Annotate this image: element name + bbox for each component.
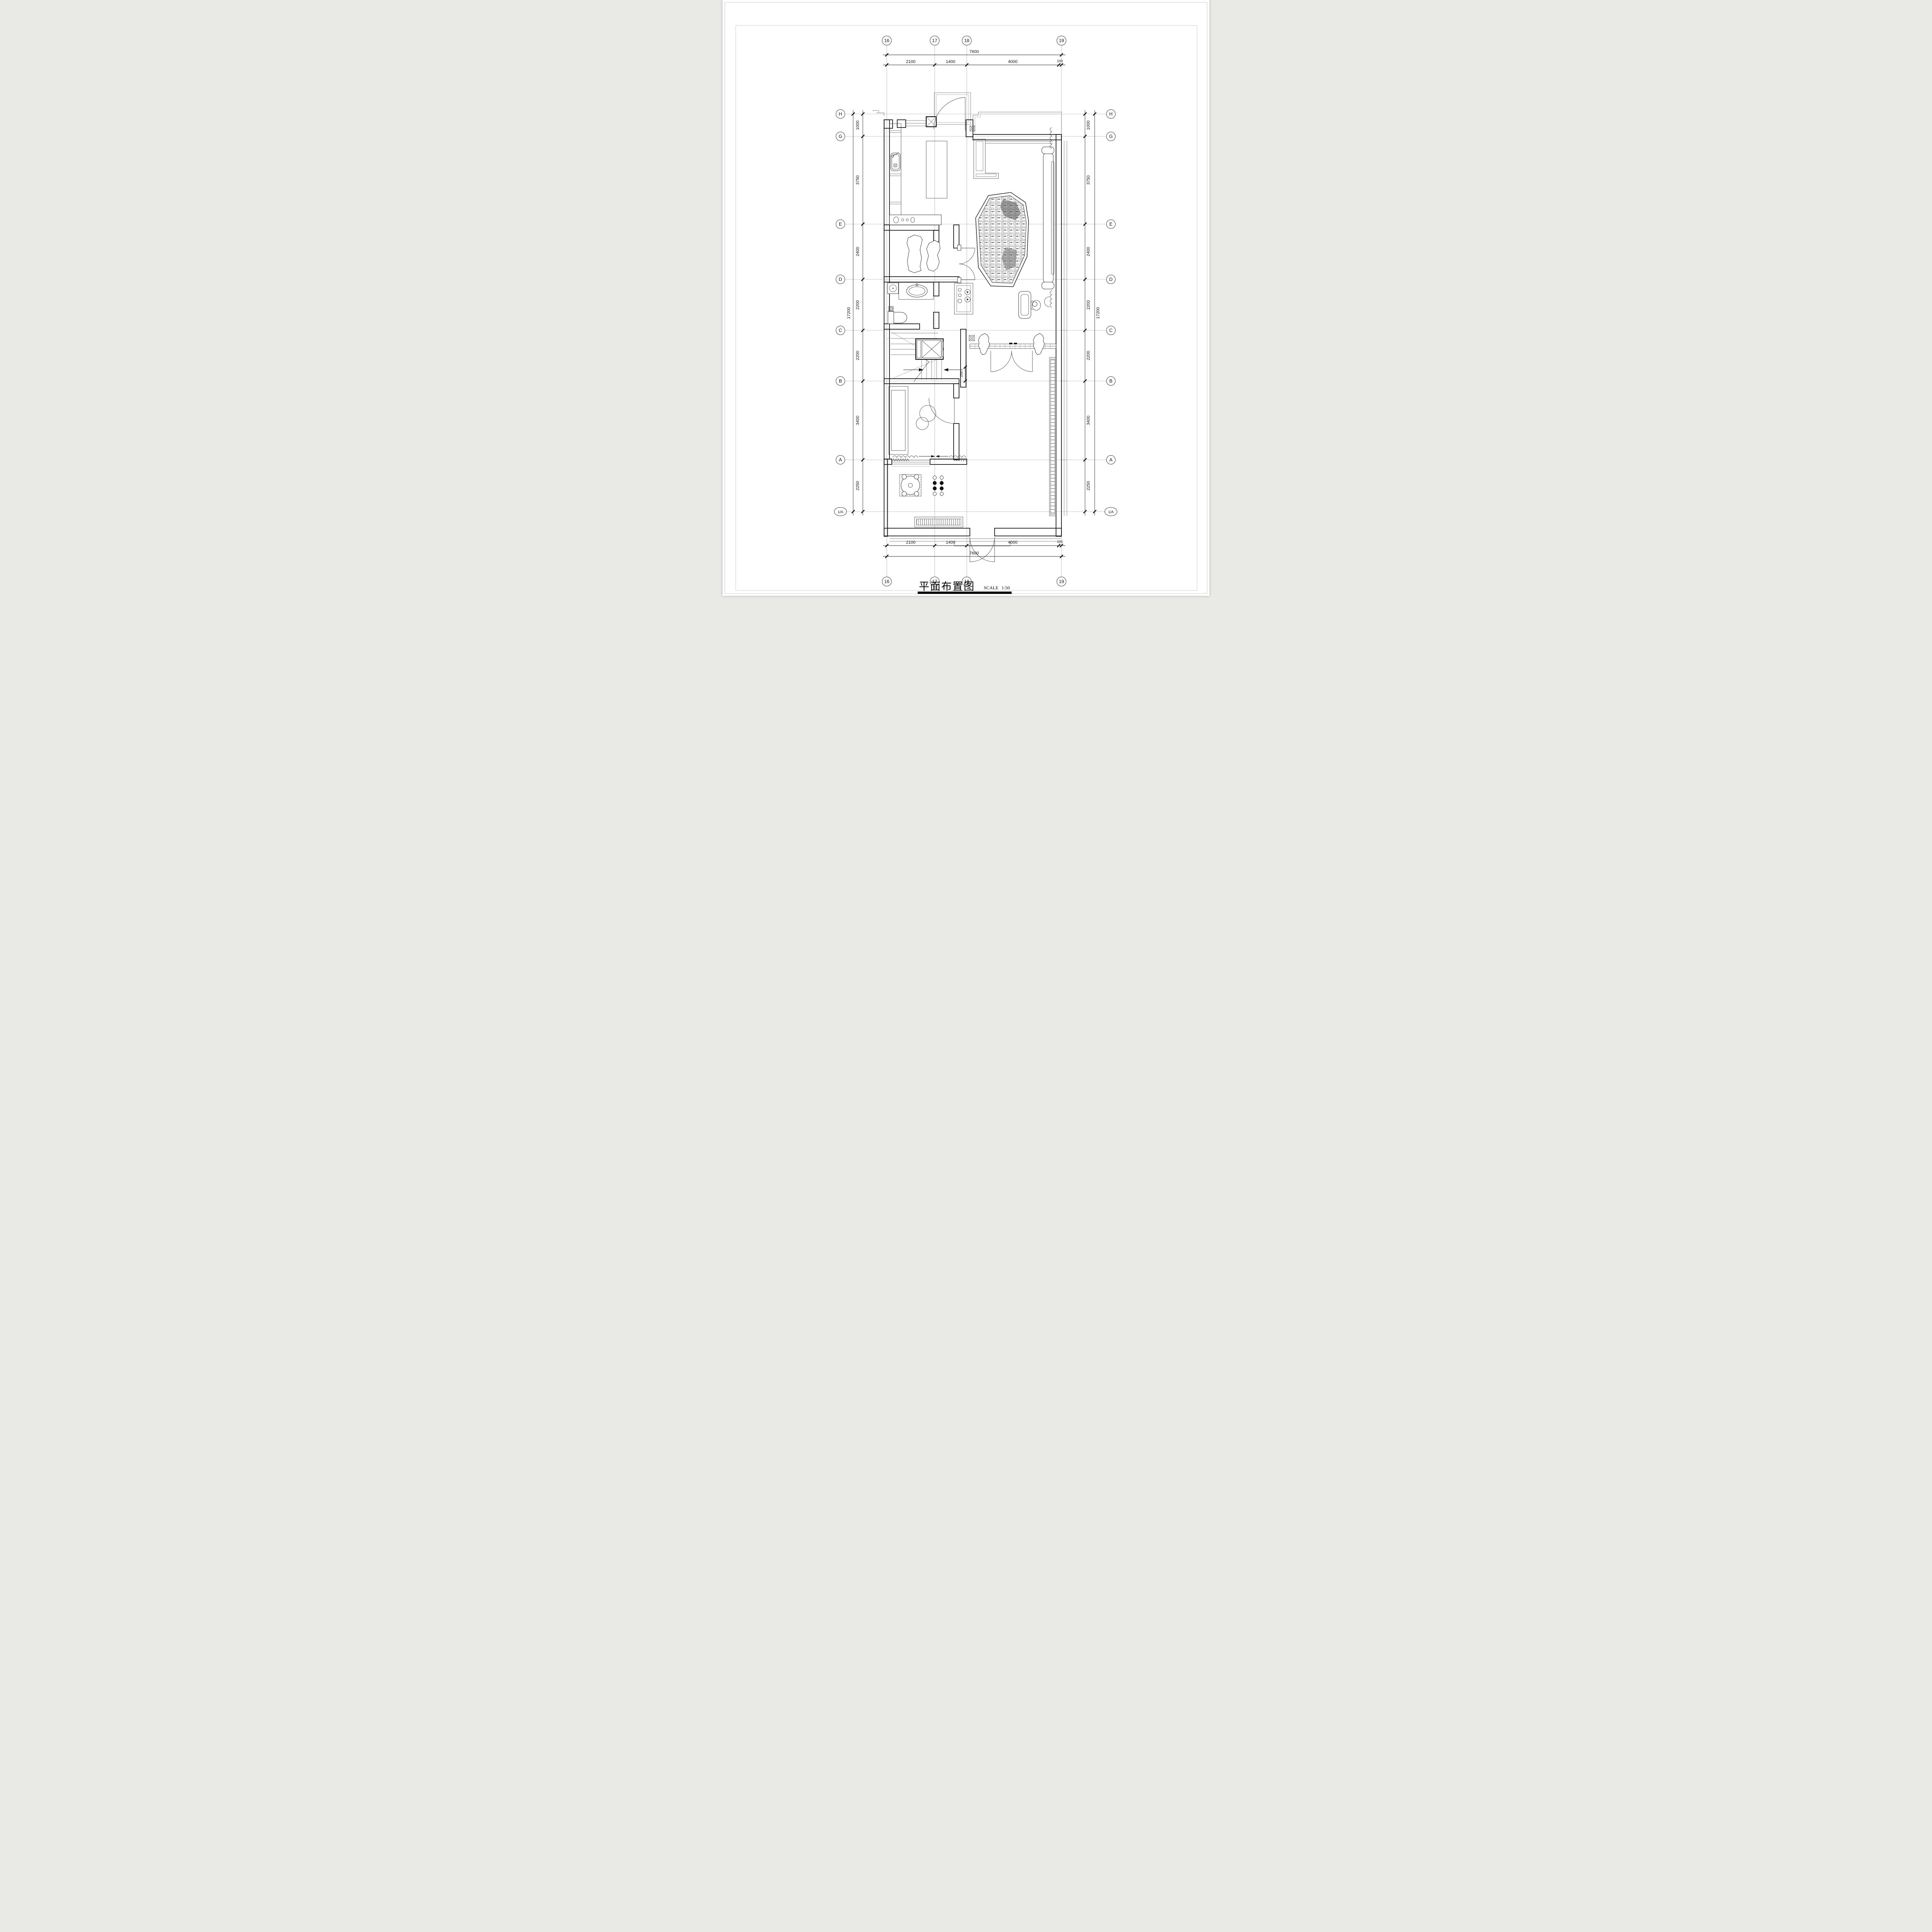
- grid-label: H: [1109, 111, 1113, 117]
- floor-drain-icon: [969, 335, 975, 341]
- bench-slats-symbol: [915, 517, 963, 527]
- sheet-frame: [725, 2, 1207, 594]
- grid-label: E: [1109, 221, 1112, 227]
- drawing-title: 平面布置图: [919, 581, 975, 593]
- grid-bubbles-right: H G E D C B A 1/A: [1105, 110, 1117, 516]
- grid-label: 19: [1059, 579, 1064, 584]
- dim-text: 2400: [855, 247, 860, 256]
- title-block: 平面布置图 SCALE 1:50: [918, 581, 1012, 596]
- dim-text: 100: [1057, 59, 1063, 63]
- wall-pier: [934, 230, 939, 242]
- wall-bottom-right: [995, 528, 1061, 536]
- wall-study-right-lower: [954, 423, 959, 460]
- wall-left-courtyard: [884, 459, 888, 536]
- map-table-symbol: [976, 192, 1029, 287]
- entry-closet: [974, 139, 998, 179]
- wall-kitchen-bedroom: [884, 225, 939, 230]
- grid-label: G: [838, 134, 842, 139]
- mat-symbol: [927, 240, 940, 271]
- dim-text: 200: [959, 371, 963, 377]
- dim-text: 2200: [855, 300, 860, 310]
- grid-label: D: [1109, 277, 1113, 282]
- wall-top-right: [973, 134, 1061, 140]
- dim-text: 3400: [1086, 416, 1091, 425]
- dim-text: 17200: [1096, 307, 1100, 319]
- shower-panel-symbol: [954, 283, 973, 314]
- grid-label: A: [1109, 457, 1112, 463]
- grid-label: 1/A: [838, 510, 844, 514]
- dim-text: 1400: [946, 60, 955, 64]
- dim-text: 100: [1057, 540, 1063, 544]
- stair-arrow: [919, 368, 923, 371]
- grid-label: 19: [1059, 38, 1064, 43]
- wall-study-right-upper: [954, 384, 959, 398]
- grid-label: 16: [884, 38, 889, 43]
- desk-symbol: [1019, 291, 1031, 318]
- grid-label: 1/A: [1108, 510, 1114, 514]
- doors: [929, 97, 1032, 562]
- grid-label: H: [839, 111, 842, 117]
- stair-arrow: [944, 368, 948, 371]
- toilet-symbol: [888, 311, 907, 324]
- title-underline-bar: [918, 592, 1012, 594]
- mat-symbol: [907, 235, 922, 273]
- table-symbol: [920, 405, 936, 422]
- dim-text: 17200: [847, 307, 851, 319]
- grid-label: C: [1109, 328, 1113, 333]
- dim-text: 3750: [1086, 175, 1091, 185]
- wall-niche: [1044, 297, 1049, 307]
- drawing-sheet: 16 17 18 19 16 17 18 19 H G E: [723, 0, 1209, 596]
- patio-table-symbol: [900, 474, 921, 496]
- window-top: [906, 121, 926, 126]
- grid-label: 17: [932, 38, 937, 43]
- vanity-sink-symbol: [899, 282, 934, 299]
- wall-entry-jamb: [966, 120, 973, 137]
- grid-bubbles-top: 16 17 18 19: [882, 36, 1066, 45]
- grid-label: 18: [964, 38, 969, 43]
- dim-text: 2400: [1086, 247, 1091, 256]
- chair-symbol: [933, 475, 937, 496]
- grid-system: 16 17 18 19 16 17 18 19 H G E: [834, 36, 1117, 586]
- grid-label: B: [839, 378, 842, 384]
- dim-text: 2100: [906, 60, 915, 64]
- wall-bath-bottom: [884, 324, 920, 329]
- person-at-desk-symbol: [1031, 300, 1041, 310]
- grid-label: E: [839, 221, 842, 227]
- walls: [884, 117, 1061, 536]
- bathroom: [888, 282, 973, 324]
- chair-symbol: [916, 417, 929, 430]
- dim-text: 2250: [855, 481, 860, 490]
- dim-right: 1000 3750 2400 2200 2200 3400 2250 17200: [1083, 110, 1100, 515]
- kitchen-sink-symbol: [891, 153, 900, 171]
- desk-cabinet: [889, 386, 908, 454]
- wall-bedroom-right-upper: [954, 225, 959, 248]
- radiator-grate-symbol: [1049, 357, 1056, 516]
- dim-text: 1000: [1086, 121, 1091, 130]
- dim-text: 2250: [1086, 481, 1091, 490]
- scale-value: 1:50: [1002, 585, 1010, 590]
- dim-text: 4000: [1008, 540, 1017, 545]
- dim-text: 2200: [855, 351, 860, 360]
- dim-text: 3400: [855, 416, 860, 425]
- dim-text: 2200: [1086, 351, 1091, 360]
- grid-label: B: [1109, 378, 1112, 384]
- dim-text: 1400: [946, 540, 955, 545]
- dim-text: 7600: [969, 49, 979, 54]
- chair-symbol: [940, 475, 944, 496]
- scale-label: SCALE: [984, 585, 998, 590]
- washing-machine-symbol: [888, 283, 898, 294]
- wall-bottom-left: [884, 528, 970, 536]
- plant-symbol: [978, 333, 990, 355]
- floor-plan-svg: 16 17 18 19 16 17 18 19 H G E: [723, 0, 1209, 596]
- wall-a-right: [930, 459, 967, 464]
- bedroom: [907, 235, 940, 273]
- kitchen-island: [926, 141, 947, 198]
- dim-left: 1000 3750 2400 2200 2200 3400 2250 17200: [847, 110, 864, 515]
- grid-bubbles-left: H G E D C B A 1/A: [834, 110, 847, 516]
- glass-partition: [970, 333, 1056, 355]
- wall-a-left: [884, 459, 892, 464]
- dim-top: 7600 2100 1400 4000 100: [883, 49, 1065, 66]
- cooktop-symbol: [889, 215, 941, 225]
- dim-text: 2100: [906, 540, 915, 545]
- grid-label: 16: [884, 579, 889, 584]
- dim-bottom: 2100 1400 4000 100 7600: [883, 540, 1065, 558]
- elevator-shaft-symbol: [916, 339, 943, 359]
- wall-bath-right-upper: [934, 282, 939, 296]
- dim-text: 3750: [855, 175, 860, 185]
- bedroom-double-door: [957, 245, 975, 283]
- desk-cabinet-inner: [891, 390, 905, 451]
- grid-label: C: [839, 328, 842, 333]
- living-area: [976, 128, 1054, 318]
- sofa-symbol: [1042, 147, 1054, 289]
- dim-text: 2200: [1086, 300, 1091, 310]
- dim-text: 4000: [1008, 60, 1017, 64]
- wall-bath-right-lower: [934, 312, 939, 328]
- terrace-french-doors: [970, 537, 995, 562]
- wall-corner-block: [884, 120, 893, 128]
- grid-label: D: [839, 277, 842, 282]
- window-top-right: [985, 141, 1053, 143]
- wall-right-exterior: [1056, 134, 1061, 536]
- wall-bedroom-bath: [884, 277, 959, 282]
- partition-french-doors: [991, 351, 1032, 372]
- grid-label: G: [1109, 134, 1112, 139]
- dim-text: 1000: [855, 121, 860, 130]
- grid-label: A: [839, 457, 842, 463]
- plant-symbol: [1033, 333, 1044, 355]
